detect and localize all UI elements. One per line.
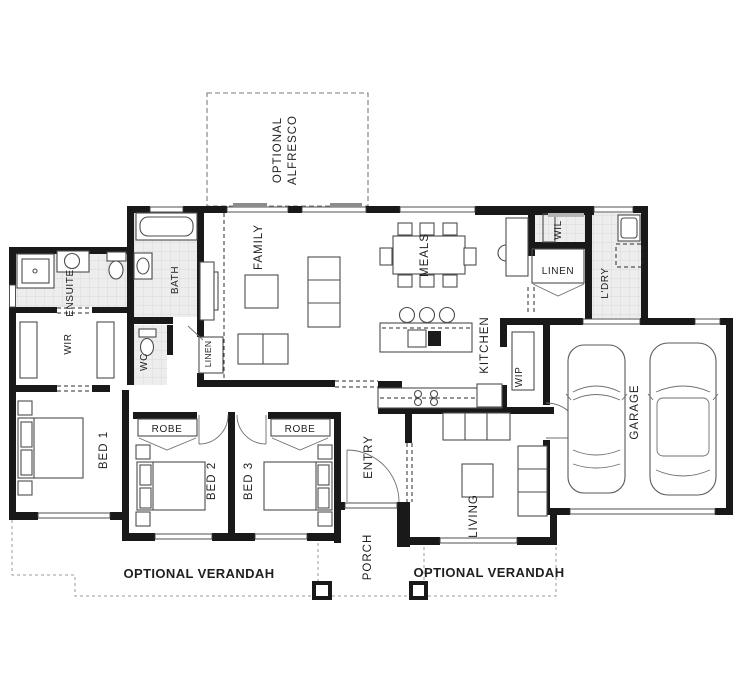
family-sofa-long (308, 257, 340, 327)
verandah-right-label: OPTIONAL VERANDAH (413, 565, 564, 580)
bed3-side-table (318, 512, 332, 526)
oven (477, 384, 502, 407)
laundry-label: L'DRY (600, 267, 611, 298)
wir-label: WIR (63, 333, 74, 354)
bed3-label: BED 3 (243, 462, 255, 500)
wc-bowl (141, 339, 154, 356)
wip-label: WIP (514, 367, 525, 388)
linen-family-label: LINEN (203, 341, 213, 368)
bed2-side-table (136, 512, 150, 526)
dining-chair (443, 275, 457, 287)
stool (400, 308, 415, 323)
coffee-table (245, 275, 278, 308)
bed1-furniture (18, 401, 83, 495)
bath-window (150, 207, 183, 212)
ensuite-toilet-bowl (109, 261, 123, 279)
dining-chair (464, 248, 476, 265)
bed3-window (255, 534, 307, 539)
family-slider-panel (233, 203, 267, 207)
dining-chair (443, 223, 457, 235)
wc-label: WC (139, 353, 150, 371)
bed2-window (155, 534, 212, 539)
wil-label: WIL (553, 220, 564, 240)
living-furniture (443, 413, 547, 516)
dining-chair (380, 248, 392, 265)
living-console (518, 446, 547, 516)
meals-furniture (380, 218, 528, 287)
porch-post-right-core (413, 585, 424, 596)
bed1-side-table (18, 481, 32, 495)
porch-label: PORCH (362, 534, 374, 581)
ensuite-toilet-cistern (107, 252, 126, 261)
wil-rail (548, 213, 584, 217)
linen-hall-label: LINEN (542, 266, 574, 277)
bed3-door-swing (237, 415, 266, 444)
bed2-furniture (136, 419, 205, 526)
meals-window (400, 207, 475, 212)
hutch-basin (498, 245, 506, 261)
alfresco-label-line1: OPTIONAL (272, 117, 284, 183)
bed1-pillow (21, 450, 32, 475)
bed3-furniture (264, 419, 332, 526)
front-door-sill (345, 503, 397, 508)
robe2-label: ROBE (152, 424, 183, 435)
family-label: FAMILY (253, 224, 265, 270)
porch-posts (312, 581, 428, 600)
island-sink (408, 330, 426, 347)
ensuite-label: ENSUITE (65, 269, 76, 317)
bed2-side-table (136, 445, 150, 459)
bed1-window (38, 513, 110, 518)
living-table (462, 464, 493, 497)
garage-window (695, 319, 720, 324)
bed2-pillow (140, 465, 151, 485)
alfresco-label-line2: ALFRESCO (287, 115, 299, 185)
dining-chair (398, 223, 412, 235)
garage-label: GARAGE (629, 384, 641, 439)
stool (420, 308, 435, 323)
meals-label: MEALS (419, 233, 431, 277)
bed2-door-swing (199, 415, 228, 444)
kitchen-label: KITCHEN (479, 316, 491, 373)
bath-label: BATH (170, 266, 181, 294)
bed2-label: BED 2 (206, 462, 218, 500)
bed3-pillow (318, 488, 329, 508)
dining-chair (398, 275, 412, 287)
tv (214, 272, 218, 310)
bed1-side-table (18, 401, 32, 415)
robe3-label: ROBE (285, 424, 316, 435)
laundry-garage-door (583, 319, 640, 324)
ensuite-window (10, 285, 16, 307)
entry-label: ENTRY (363, 435, 375, 479)
bed1-pillow (21, 422, 32, 447)
meals-sliding-door (302, 207, 366, 212)
island-sink-bowl (428, 331, 441, 346)
tv-unit (200, 262, 214, 320)
car-left (566, 345, 627, 493)
living-label: LIVING (468, 494, 480, 538)
stool (440, 308, 455, 323)
garage-cars (566, 343, 718, 495)
wir-shelf-right (97, 322, 114, 378)
floor-plan-canvas: OPTIONAL ALFRESCO FAMILY MEALS WIL LINEN… (0, 0, 750, 695)
car-right (648, 343, 718, 495)
family-sliding-door (227, 207, 288, 212)
living-sofa (443, 413, 510, 440)
hutch-bench (506, 218, 528, 276)
linen-bifold-doors (533, 284, 584, 296)
wc-cistern (139, 329, 156, 337)
laundry-window (594, 207, 633, 212)
bed2-pillow (140, 488, 151, 508)
bed3-pillow (318, 465, 329, 485)
porch-post-left-core (316, 585, 328, 596)
meals-slider-panel (330, 203, 362, 207)
family-furniture (199, 257, 340, 373)
wir-shelf-left (20, 322, 37, 378)
verandah-left-label: OPTIONAL VERANDAH (123, 566, 274, 581)
bed1-label: BED 1 (98, 431, 110, 469)
garage-roller-door (570, 509, 715, 514)
bed3-side-table (318, 445, 332, 459)
